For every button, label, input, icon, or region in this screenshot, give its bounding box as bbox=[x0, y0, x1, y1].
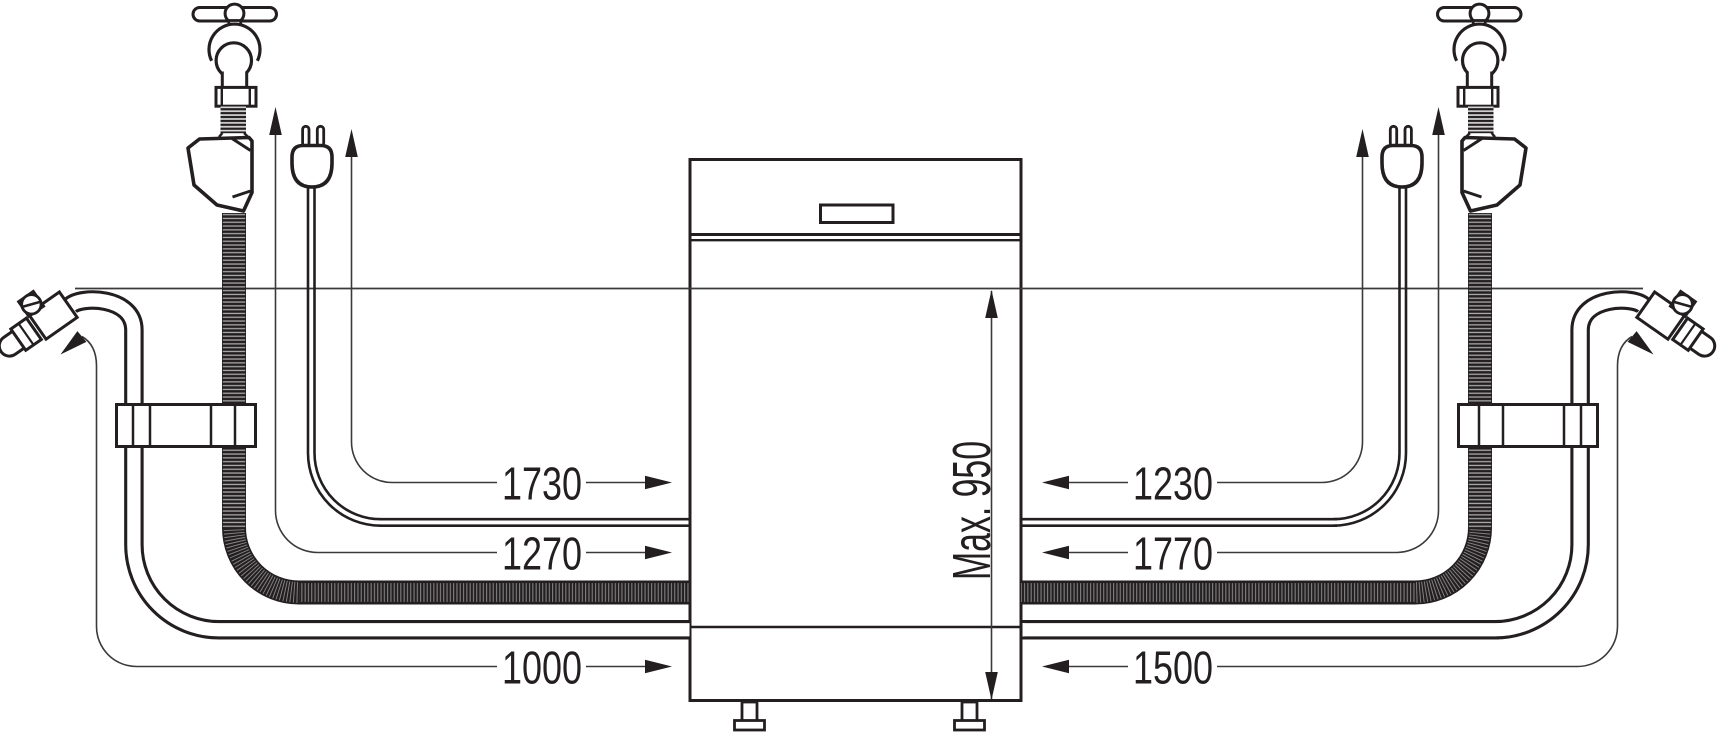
svg-text:1500: 1500 bbox=[1133, 642, 1213, 694]
svg-text:1270: 1270 bbox=[502, 528, 582, 580]
svg-text:1770: 1770 bbox=[1133, 528, 1213, 580]
svg-text:1230: 1230 bbox=[1133, 458, 1213, 510]
svg-text:1000: 1000 bbox=[502, 642, 582, 694]
svg-text:1730: 1730 bbox=[502, 458, 582, 510]
svg-text:Max. 950: Max. 950 bbox=[942, 441, 1002, 580]
